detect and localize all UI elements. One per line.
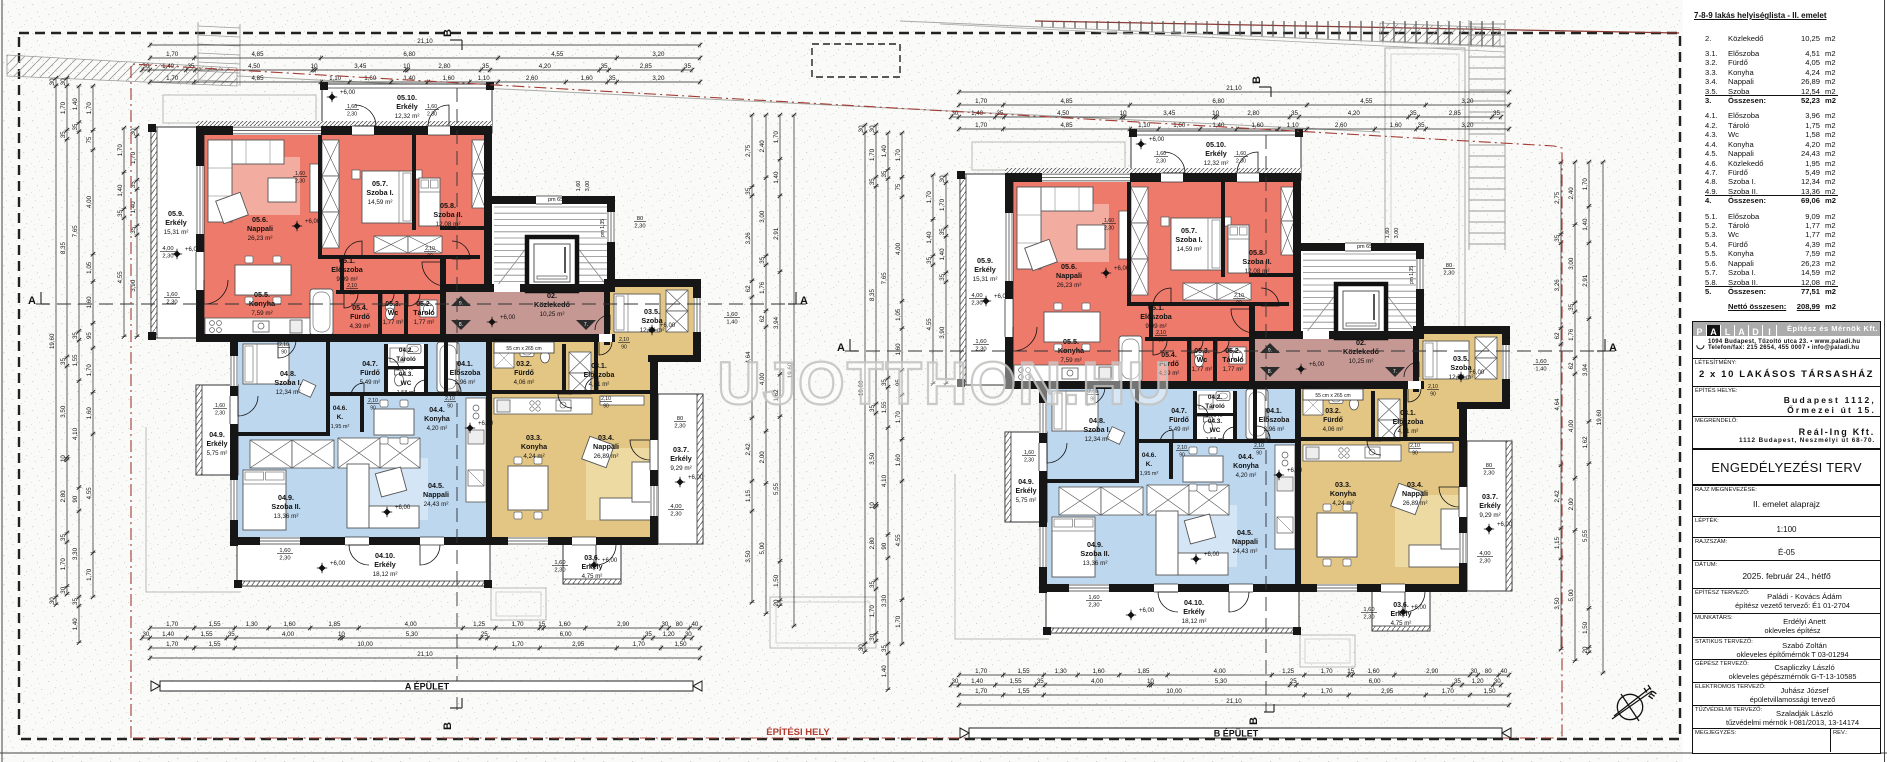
svg-text:1,70: 1,70: [166, 621, 179, 628]
svg-text:1,60: 1,60: [86, 296, 93, 309]
svg-text:4,20: 4,20: [539, 63, 552, 70]
svg-text:+6,00: +6,00: [395, 505, 411, 511]
svg-text:20: 20: [773, 599, 780, 606]
svg-text:5,30: 5,30: [406, 631, 419, 638]
svg-text:04.3.: 04.3.: [399, 371, 413, 378]
svg-text:10: 10: [311, 63, 318, 70]
svg-text:2,30: 2,30: [215, 411, 225, 417]
svg-text:Közlekedő: Közlekedő: [534, 300, 571, 309]
svg-text:35: 35: [72, 598, 79, 605]
svg-text:21,10: 21,10: [417, 38, 433, 45]
svg-text:04.2.: 04.2.: [399, 347, 413, 354]
svg-text:95: 95: [86, 332, 93, 339]
svg-text:35: 35: [609, 75, 616, 82]
svg-text:30: 30: [661, 621, 668, 628]
svg-text:35: 35: [72, 123, 79, 130]
svg-text:1,70: 1,70: [86, 102, 93, 115]
svg-text:04.10.: 04.10.: [375, 551, 395, 560]
svg-text:80: 80: [676, 621, 683, 628]
svg-text:+6,00: +6,00: [660, 323, 676, 329]
svg-text:24,43 m²: 24,43 m²: [424, 501, 449, 508]
svg-text:1,10: 1,10: [478, 75, 491, 82]
svg-text:1,77 m²: 1,77 m²: [414, 319, 435, 326]
svg-text:18,12 m²: 18,12 m²: [373, 571, 398, 578]
svg-text:2,30: 2,30: [166, 300, 177, 306]
svg-text:03.1.: 03.1.: [591, 363, 607, 370]
svg-text:K.: K.: [337, 414, 344, 421]
svg-text:Fürdő: Fürdő: [350, 314, 370, 321]
svg-text:04.5.: 04.5.: [428, 481, 444, 490]
svg-text:Előszoba: Előszoba: [450, 370, 481, 377]
svg-text:10,25 m²: 10,25 m²: [540, 311, 565, 318]
svg-text:Előszoba: Előszoba: [584, 372, 615, 379]
svg-text:1,60: 1,60: [364, 75, 377, 82]
svg-text:2,95: 2,95: [572, 641, 585, 648]
svg-text:75: 75: [86, 136, 93, 143]
svg-text:3,50: 3,50: [745, 550, 752, 563]
svg-text:1,40: 1,40: [72, 98, 79, 111]
svg-text:2,10: 2,10: [445, 396, 455, 402]
svg-text:2,40: 2,40: [759, 140, 766, 153]
svg-text:10: 10: [60, 455, 67, 462]
svg-text:3,20: 3,20: [652, 51, 665, 58]
svg-text:2,75: 2,75: [745, 144, 752, 157]
svg-text:5,55: 5,55: [773, 482, 780, 495]
svg-text:Szoba I.: Szoba I.: [274, 378, 301, 387]
svg-text:26,89 m²: 26,89 m²: [594, 453, 619, 460]
svg-text:1,70: 1,70: [773, 131, 780, 144]
svg-text:B: B: [442, 29, 454, 37]
svg-text:Nappali: Nappali: [593, 442, 619, 451]
svg-text:+6,00: +6,00: [305, 219, 321, 225]
svg-text:1,95 m²: 1,95 m²: [331, 424, 350, 430]
svg-text:04.9.: 04.9.: [278, 493, 294, 502]
svg-text:30: 30: [685, 631, 692, 638]
svg-text:Erkély: Erkély: [670, 454, 692, 463]
svg-text:1,50: 1,50: [674, 641, 687, 648]
svg-text:35: 35: [645, 631, 652, 638]
svg-text:2,91: 2,91: [773, 227, 780, 240]
svg-text:1,60: 1,60: [726, 312, 737, 318]
svg-text:2,30: 2,30: [674, 424, 685, 430]
svg-text:+6,00: +6,00: [602, 558, 618, 564]
svg-text:4,00: 4,00: [162, 246, 173, 252]
svg-text:1,60: 1,60: [581, 75, 594, 82]
svg-text:1,60: 1,60: [295, 171, 305, 177]
svg-text:1,77 m²: 1,77 m²: [383, 319, 404, 326]
svg-text:2,30: 2,30: [295, 179, 305, 185]
svg-text:90: 90: [72, 495, 79, 502]
svg-text:1,60: 1,60: [576, 181, 582, 192]
svg-text:A: A: [28, 295, 36, 307]
svg-text:B: B: [442, 722, 454, 730]
svg-text:90: 90: [603, 404, 609, 410]
svg-text:1,70: 1,70: [86, 364, 93, 377]
svg-text:02.: 02.: [547, 291, 557, 300]
svg-text:2,30: 2,30: [427, 112, 437, 118]
svg-text:5,75 m²: 5,75 m²: [207, 450, 228, 457]
svg-text:6,80: 6,80: [403, 51, 416, 58]
svg-text:2,30: 2,30: [347, 112, 357, 118]
svg-text:1,40: 1,40: [403, 75, 416, 82]
svg-text:2,10: 2,10: [601, 396, 611, 402]
svg-text:1,70: 1,70: [117, 144, 124, 157]
svg-text:9,09 m²: 9,09 m²: [336, 276, 357, 283]
svg-text:WC: WC: [401, 380, 412, 387]
svg-text:35: 35: [187, 63, 194, 70]
svg-text:Wc: Wc: [388, 310, 399, 317]
svg-text:2,60: 2,60: [526, 75, 539, 82]
svg-text:2,10: 2,10: [279, 342, 289, 348]
svg-text:B: B: [1248, 717, 1260, 725]
svg-text:35: 35: [228, 631, 235, 638]
svg-text:05.2.: 05.2.: [416, 301, 432, 308]
svg-text:4,85: 4,85: [251, 75, 264, 82]
svg-text:+6,00: +6,00: [688, 475, 704, 481]
svg-text:4,51 m²: 4,51 m²: [589, 381, 610, 388]
svg-text:62: 62: [745, 285, 752, 292]
svg-text:2,30: 2,30: [279, 556, 290, 562]
svg-text:1,70: 1,70: [60, 558, 67, 571]
svg-text:05.6.: 05.6.: [252, 215, 268, 224]
svg-text:90: 90: [447, 404, 453, 410]
svg-text:3,96 m²: 3,96 m²: [455, 379, 476, 386]
svg-text:2,42: 2,42: [745, 443, 752, 456]
svg-text:1,60: 1,60: [558, 621, 571, 628]
svg-text:30: 30: [142, 631, 149, 638]
svg-text:05.3.: 05.3.: [385, 301, 401, 308]
svg-text:3,50: 3,50: [60, 405, 67, 418]
svg-text:35: 35: [759, 256, 766, 263]
svg-text:30: 30: [49, 597, 56, 604]
svg-text:35: 35: [60, 358, 67, 365]
svg-text:8.: 8.: [459, 322, 463, 328]
svg-text:03.2.: 03.2.: [516, 361, 532, 368]
svg-text:30: 30: [60, 78, 67, 85]
svg-text:pm 1,35: pm 1,35: [600, 219, 606, 237]
svg-text:2,00: 2,00: [759, 451, 766, 464]
svg-text:10: 10: [338, 631, 345, 638]
svg-text:05.9.: 05.9.: [168, 209, 184, 218]
svg-text:Erkély: Erkély: [165, 218, 187, 227]
svg-text:3,94: 3,94: [773, 316, 780, 329]
svg-text:1,60: 1,60: [442, 75, 455, 82]
svg-text:7,65: 7,65: [72, 225, 79, 238]
svg-text:4,06 m²: 4,06 m²: [514, 379, 535, 386]
svg-text:2,30: 2,30: [634, 224, 645, 230]
svg-text:1,70: 1,70: [512, 641, 525, 648]
svg-text:05.8.: 05.8.: [440, 201, 456, 210]
svg-text:1,40: 1,40: [72, 618, 79, 631]
svg-text:Fürdő: Fürdő: [360, 370, 380, 377]
svg-text:1,55: 1,55: [72, 354, 79, 367]
svg-text:4,39 m²: 4,39 m²: [350, 323, 371, 330]
svg-text:4,24 m²: 4,24 m²: [523, 453, 544, 460]
svg-text:2,30: 2,30: [162, 254, 173, 260]
svg-text:3,26: 3,26: [745, 232, 752, 245]
svg-text:4,50: 4,50: [248, 63, 261, 70]
svg-text:03.3.: 03.3.: [526, 433, 542, 442]
svg-text:5,49 m²: 5,49 m²: [360, 379, 381, 386]
svg-text:04.1.: 04.1.: [457, 361, 473, 368]
svg-text:ÉPÍTÉSI HELY: ÉPÍTÉSI HELY: [766, 727, 830, 738]
svg-text:04.8.: 04.8.: [280, 369, 296, 378]
svg-text:4,55: 4,55: [86, 487, 93, 500]
svg-text:15,31 m²: 15,31 m²: [164, 229, 189, 236]
svg-text:30: 30: [60, 586, 67, 593]
svg-text:1,40: 1,40: [773, 171, 780, 184]
svg-text:1,20: 1,20: [663, 631, 676, 638]
svg-text:03.7.: 03.7.: [673, 445, 689, 454]
svg-text:5,00: 5,00: [759, 542, 766, 555]
svg-text:2,80: 2,80: [438, 63, 451, 70]
svg-text:9,29 m²: 9,29 m²: [670, 465, 691, 472]
svg-text:pm 65: pm 65: [548, 197, 563, 203]
svg-text:1,15: 1,15: [745, 489, 752, 502]
svg-text:A ÉPÜLET: A ÉPÜLET: [405, 682, 450, 692]
svg-text:1,60: 1,60: [347, 104, 357, 110]
svg-text:04.4.: 04.4.: [429, 407, 445, 414]
svg-text:10,00: 10,00: [357, 641, 373, 648]
svg-text:7.: 7.: [584, 322, 588, 328]
svg-text:1,60: 1,60: [86, 407, 93, 420]
svg-text:B ÉPÜLET: B ÉPÜLET: [1214, 729, 1259, 739]
svg-text:Előszoba: Előszoba: [331, 265, 364, 274]
svg-text:35: 35: [60, 131, 67, 138]
svg-text:05.7.: 05.7.: [372, 179, 388, 188]
svg-text:Tároló: Tároló: [396, 356, 416, 363]
svg-text:2,30: 2,30: [554, 568, 565, 574]
svg-text:1,40: 1,40: [117, 184, 124, 197]
svg-text:+6,00: +6,00: [330, 561, 346, 567]
svg-text:3,00: 3,00: [759, 210, 766, 223]
svg-text:05.1.: 05.1.: [339, 256, 355, 265]
svg-text:03.4.: 03.4.: [598, 433, 614, 442]
svg-text:1,60: 1,60: [427, 104, 437, 110]
svg-text:Fürdő: Fürdő: [514, 370, 534, 377]
svg-text:90: 90: [281, 350, 287, 356]
svg-text:21,10: 21,10: [417, 651, 433, 658]
svg-text:1,60: 1,60: [166, 292, 177, 298]
svg-text:35: 35: [72, 332, 79, 339]
svg-text:1,70: 1,70: [166, 51, 179, 58]
svg-text:62: 62: [759, 315, 766, 322]
svg-text:4,55: 4,55: [117, 271, 124, 284]
svg-text:35: 35: [482, 63, 489, 70]
svg-text:35: 35: [60, 534, 67, 541]
svg-text:1,40: 1,40: [726, 320, 737, 326]
svg-text:12,34 m²: 12,34 m²: [276, 389, 301, 396]
svg-text:Konyha: Konyha: [424, 416, 450, 423]
svg-text:35: 35: [684, 63, 691, 70]
svg-text:4,00: 4,00: [282, 631, 295, 638]
svg-text:1,58 m²: 1,58 m²: [397, 390, 416, 396]
svg-text:Erkély: Erkély: [396, 102, 418, 111]
svg-text:4,10: 4,10: [72, 427, 79, 440]
svg-text:Nappali: Nappali: [423, 490, 449, 499]
svg-text:35: 35: [745, 187, 752, 194]
svg-text:Szoba II.: Szoba II.: [271, 502, 300, 511]
svg-text:80: 80: [677, 416, 683, 422]
svg-text:2,80: 2,80: [60, 490, 67, 503]
svg-text:4,00: 4,00: [670, 504, 681, 510]
svg-text:03.5.: 03.5.: [644, 307, 660, 316]
svg-text:4,85: 4,85: [251, 51, 264, 58]
svg-text:15: 15: [538, 621, 545, 628]
svg-text:35: 35: [117, 209, 124, 216]
svg-text:1,70: 1,70: [166, 641, 179, 648]
svg-text:1,55: 1,55: [200, 631, 213, 638]
svg-text:2,10: 2,10: [368, 398, 378, 404]
svg-text:UJOTTHON.HU: UJOTTHON.HU: [717, 350, 1172, 417]
svg-text:19,60: 19,60: [49, 333, 56, 349]
svg-text:55 cm x 265 cm: 55 cm x 265 cm: [506, 346, 541, 352]
svg-text:2,90: 2,90: [617, 621, 630, 628]
svg-text:3,30: 3,30: [72, 547, 79, 560]
svg-text:4,00: 4,00: [405, 621, 418, 628]
svg-text:1,60: 1,60: [215, 403, 225, 409]
svg-text:1,70: 1,70: [86, 568, 93, 581]
svg-text:+6,00: +6,00: [185, 247, 201, 253]
svg-text:4,55: 4,55: [551, 51, 564, 58]
svg-text:4,20 m²: 4,20 m²: [427, 425, 448, 432]
svg-text:13,36 m²: 13,36 m²: [274, 513, 299, 520]
svg-text:1,76: 1,76: [759, 281, 766, 294]
svg-text:3,00: 3,00: [585, 181, 591, 192]
svg-text:26,23 m²: 26,23 m²: [248, 235, 273, 242]
svg-text:04.7.: 04.7.: [362, 361, 378, 368]
svg-text:30: 30: [49, 78, 56, 85]
svg-text:2,10: 2,10: [619, 337, 629, 343]
svg-text:14,59 m²: 14,59 m²: [368, 199, 393, 206]
svg-text:1,40: 1,40: [162, 631, 175, 638]
svg-text:10: 10: [403, 63, 410, 70]
svg-text:04.6.: 04.6.: [333, 405, 347, 412]
svg-text:2,10: 2,10: [425, 246, 435, 252]
svg-text:+6,00: +6,00: [478, 421, 494, 427]
svg-text:4,00: 4,00: [86, 195, 93, 208]
svg-text:03.6.: 03.6.: [584, 555, 600, 562]
svg-text:1,55: 1,55: [208, 641, 221, 648]
svg-text:12,32 m²: 12,32 m²: [395, 113, 420, 120]
svg-text:8,35: 8,35: [60, 242, 67, 255]
svg-text:90: 90: [349, 291, 355, 297]
svg-text:1,55: 1,55: [208, 621, 221, 628]
svg-text:Szoba II.: Szoba II.: [433, 210, 462, 219]
svg-text:05.10.: 05.10.: [397, 93, 417, 102]
svg-text:Konyha: Konyha: [249, 299, 276, 308]
svg-text:1,60: 1,60: [283, 621, 296, 628]
svg-text:1,70: 1,70: [633, 641, 646, 648]
svg-text:04.9.: 04.9.: [209, 432, 225, 439]
svg-text:Erkély: Erkély: [206, 441, 227, 448]
svg-text:+6,00: +6,00: [500, 315, 516, 321]
svg-text:1,85: 1,85: [328, 621, 341, 628]
svg-text:1,30: 1,30: [246, 621, 259, 628]
svg-text:35: 35: [601, 63, 608, 70]
svg-text:1,50: 1,50: [773, 574, 780, 587]
svg-text:1,70: 1,70: [166, 75, 179, 82]
svg-text:1,70: 1,70: [512, 621, 525, 628]
svg-text:Szoba I.: Szoba I.: [366, 188, 393, 197]
svg-text:Erkély: Erkély: [374, 560, 396, 569]
svg-text:90: 90: [427, 254, 433, 260]
svg-text:6,00: 6,00: [560, 631, 573, 638]
svg-text:80: 80: [637, 216, 643, 222]
svg-text:25: 25: [481, 631, 488, 638]
svg-text:1,60: 1,60: [554, 560, 565, 566]
svg-text:05.4.: 05.4.: [352, 305, 368, 312]
svg-text:Nappali: Nappali: [247, 224, 273, 233]
svg-text:2,85: 2,85: [640, 63, 653, 70]
svg-text:Konyha: Konyha: [521, 442, 548, 451]
svg-text:1,05: 1,05: [86, 261, 93, 274]
svg-text:2,10: 2,10: [347, 283, 357, 289]
svg-text:Tároló: Tároló: [413, 310, 434, 317]
svg-text:3,45: 3,45: [354, 63, 367, 70]
svg-text:90: 90: [621, 345, 627, 351]
svg-text:+6,00: +6,00: [340, 90, 356, 96]
svg-text:40: 40: [691, 621, 698, 628]
svg-text:05.5.: 05.5.: [254, 290, 270, 299]
svg-text:1,60: 1,60: [279, 548, 290, 554]
svg-text:7,59 m²: 7,59 m²: [251, 310, 272, 317]
svg-text:2,30: 2,30: [670, 512, 681, 518]
svg-text:3,20: 3,20: [652, 75, 665, 82]
svg-text:1,25: 1,25: [473, 621, 486, 628]
svg-text:1,70: 1,70: [60, 101, 67, 114]
svg-text:A: A: [800, 295, 808, 307]
svg-text:4,75 m²: 4,75 m²: [582, 573, 603, 580]
svg-text:90: 90: [370, 406, 376, 412]
